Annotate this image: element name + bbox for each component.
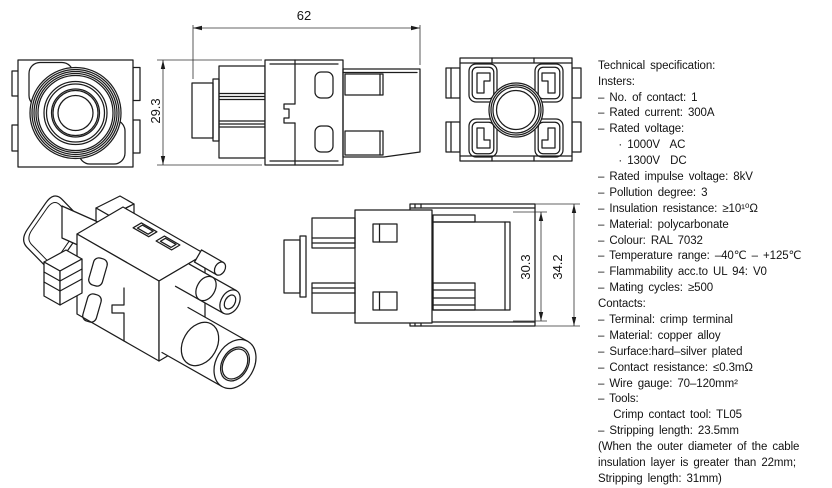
- spec-line: – Rated current: 300A: [598, 106, 831, 122]
- technical-drawing-page: 62 29.3 30.3 34.2 Technical specificatio…: [0, 0, 832, 454]
- drawing-canvas: [0, 0, 596, 454]
- rear-view: [446, 58, 581, 161]
- spec-line: – Pollution degree: 3: [598, 186, 831, 202]
- spec-line: – Rated impulse voltage: 8kV: [598, 170, 831, 186]
- dimension-outer-height-label: 34.2: [551, 250, 565, 284]
- front-view: [12, 60, 140, 167]
- spec-line: – Wire gauge: 70–120mm²: [598, 377, 831, 393]
- spec-line: – Material: polycarbonate: [598, 218, 831, 234]
- spec-line: Contacts:: [598, 297, 831, 313]
- spec-line: insulation layer is greater than 22mm;: [598, 456, 831, 472]
- spec-line: Technical specification:: [598, 59, 831, 75]
- iso-view: [24, 196, 265, 396]
- spec-panel: Technical specification:Insters:– No. of…: [598, 11, 831, 488]
- rear-view-contact-hole: [489, 83, 543, 137]
- spec-line: – No. of contact: 1: [598, 91, 831, 107]
- spec-line: – Temperature range: –40℃ – +125℃: [598, 249, 831, 265]
- spec-line: Insters:: [598, 75, 831, 91]
- dimension-width-label: 62: [289, 9, 319, 23]
- spec-line: – Colour: RAL 7032: [598, 234, 831, 250]
- dimension-inner-height-label: 30.3: [519, 250, 533, 284]
- front-view-contact-rings: [30, 68, 121, 159]
- spec-line: – Contact resistance: ≤0.3mΩ: [598, 361, 831, 377]
- spec-line: – Rated voltage:: [598, 122, 831, 138]
- dimension-height-label: 29.3: [149, 94, 163, 128]
- spec-line: · 1300V DC: [598, 154, 831, 170]
- spec-line: – Flammability acc.to UL 94: V0: [598, 265, 831, 281]
- spec-line: – Mating cycles: ≥500: [598, 281, 831, 297]
- spec-line: – Material: copper alloy: [598, 329, 831, 345]
- spec-line: – Tools:: [598, 392, 831, 408]
- iso-nose: [44, 250, 82, 305]
- spec-line: – Terminal: crimp terminal: [598, 313, 831, 329]
- spec-line: – Surface:hard–silver plated: [598, 345, 831, 361]
- side-view-top: [157, 25, 420, 165]
- spec-line: Crimp contact tool: TL05: [598, 408, 831, 424]
- spec-line: – Insulation resistance: ≥10¹⁰Ω: [598, 202, 831, 218]
- spec-line: · 1000V AC: [598, 138, 831, 154]
- spec-line: – Stripping length: 23.5mm: [598, 424, 831, 440]
- side-view-bottom: [284, 204, 580, 326]
- dimension-height-lines: [157, 60, 262, 165]
- spec-line: Stripping length: 31mm): [598, 472, 831, 488]
